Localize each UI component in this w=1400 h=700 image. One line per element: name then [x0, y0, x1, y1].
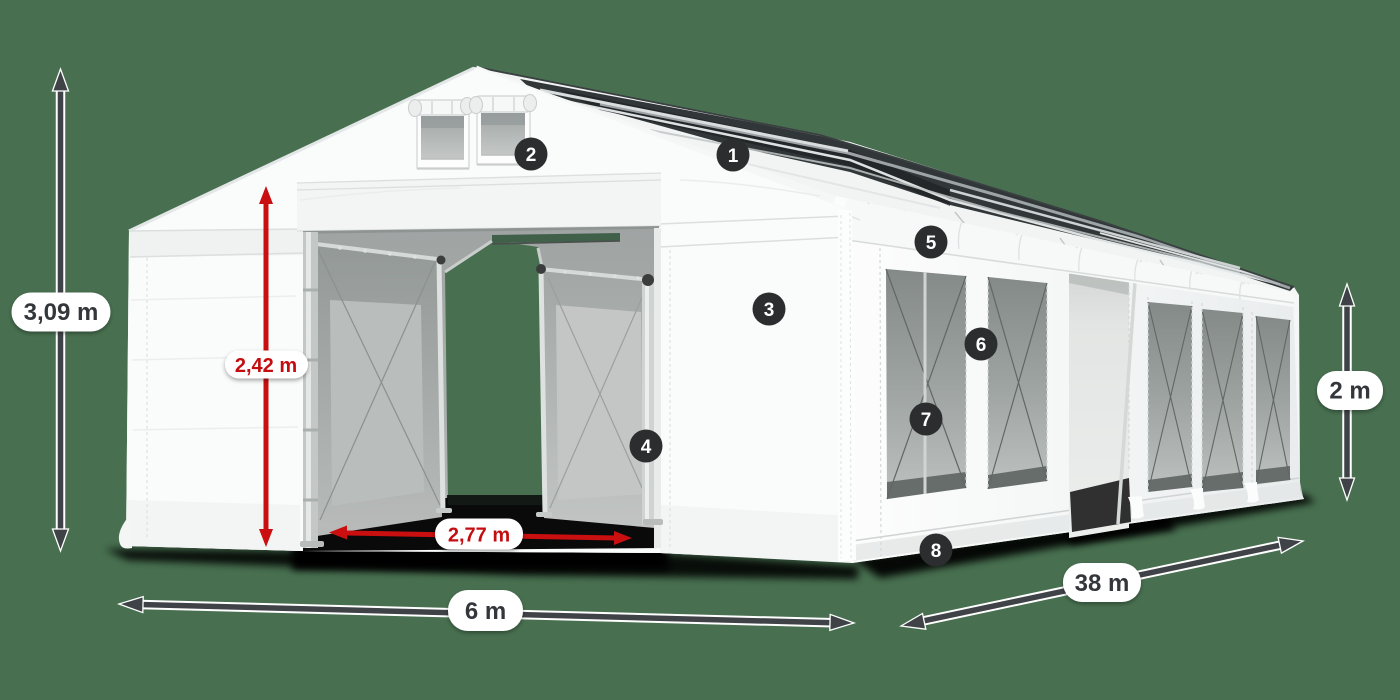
svg-text:8: 8 [931, 541, 942, 562]
svg-text:3,09 m: 3,09 m [24, 299, 99, 326]
svg-text:38 m: 38 m [1075, 570, 1130, 597]
svg-text:1: 1 [728, 146, 739, 167]
svg-text:6: 6 [976, 335, 987, 356]
svg-text:5: 5 [926, 233, 937, 254]
svg-text:4: 4 [641, 437, 652, 458]
svg-text:2,77 m: 2,77 m [448, 525, 510, 547]
svg-text:6 m: 6 m [465, 598, 506, 625]
svg-text:3: 3 [764, 300, 775, 321]
svg-text:2 m: 2 m [1329, 378, 1370, 405]
svg-text:7: 7 [921, 410, 932, 431]
svg-text:2,42 m: 2,42 m [235, 355, 297, 377]
svg-text:2: 2 [526, 145, 537, 166]
